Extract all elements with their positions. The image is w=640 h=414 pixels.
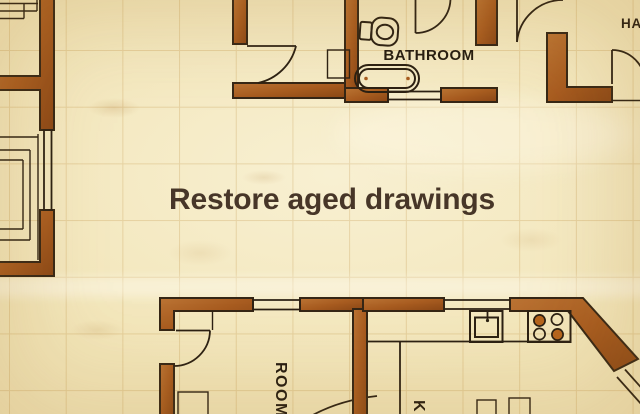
headline-text: Restore aged drawings	[12, 183, 640, 217]
aged-floor-plan-screen: BATHROOM HA ROOM	[0, 0, 640, 414]
